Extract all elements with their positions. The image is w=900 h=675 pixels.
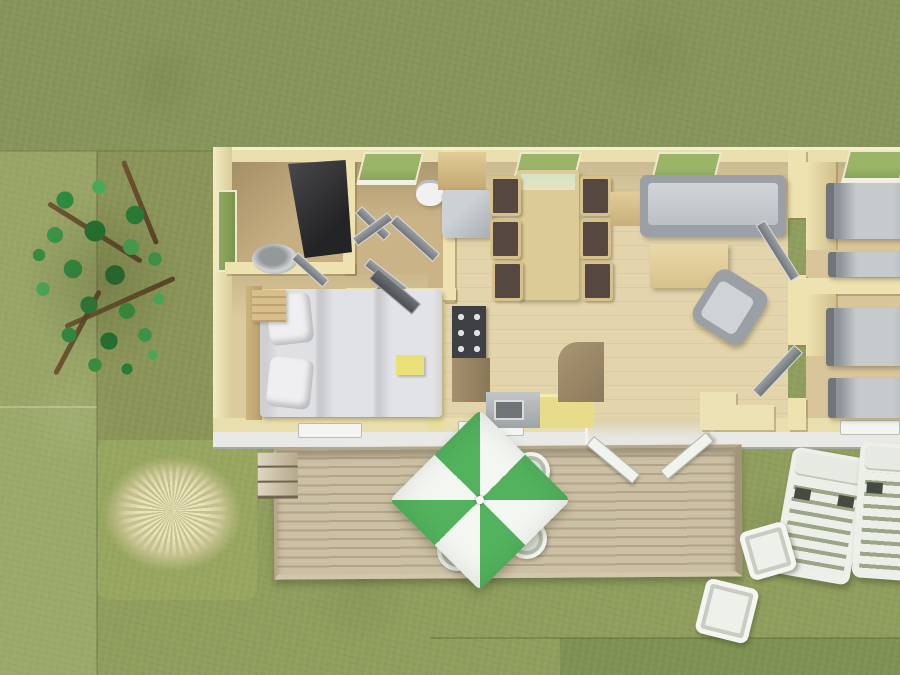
window <box>840 420 900 435</box>
dining-chair <box>490 219 521 259</box>
window <box>841 150 900 183</box>
single-bed <box>826 308 900 366</box>
dining-chair <box>492 261 523 301</box>
mobile-home <box>213 147 900 447</box>
dining-chair <box>582 261 613 301</box>
interior-wall <box>788 398 806 430</box>
garden-scene: Aerial 3D architectural rendering of a r… <box>0 0 900 675</box>
dining-chair <box>580 176 611 216</box>
sideboard <box>700 392 736 430</box>
side-table <box>396 355 424 375</box>
fridge <box>442 190 492 238</box>
deck-step <box>258 482 298 498</box>
window <box>217 190 237 272</box>
dresser <box>252 290 286 322</box>
tree <box>3 155 215 407</box>
pillow <box>266 356 315 410</box>
dining-chair <box>490 176 521 216</box>
single-bed <box>828 252 900 277</box>
kitchen-counter <box>452 358 490 402</box>
kitchen-bar <box>558 342 604 402</box>
interior-wall <box>788 150 806 218</box>
window <box>298 423 362 438</box>
cabinet <box>438 152 486 190</box>
interior-wall <box>806 278 900 294</box>
window <box>356 152 424 185</box>
sun-lounger <box>851 441 900 582</box>
dining-chair <box>580 219 611 259</box>
single-bed <box>826 183 900 239</box>
ornamental-grass-bush <box>95 450 250 595</box>
side-table <box>610 192 640 226</box>
deck-step <box>258 467 298 483</box>
cooking-hob <box>452 306 486 358</box>
deck-step <box>258 452 298 468</box>
single-bed <box>828 378 900 418</box>
interior-wall <box>788 275 806 345</box>
dining-table <box>517 170 579 300</box>
